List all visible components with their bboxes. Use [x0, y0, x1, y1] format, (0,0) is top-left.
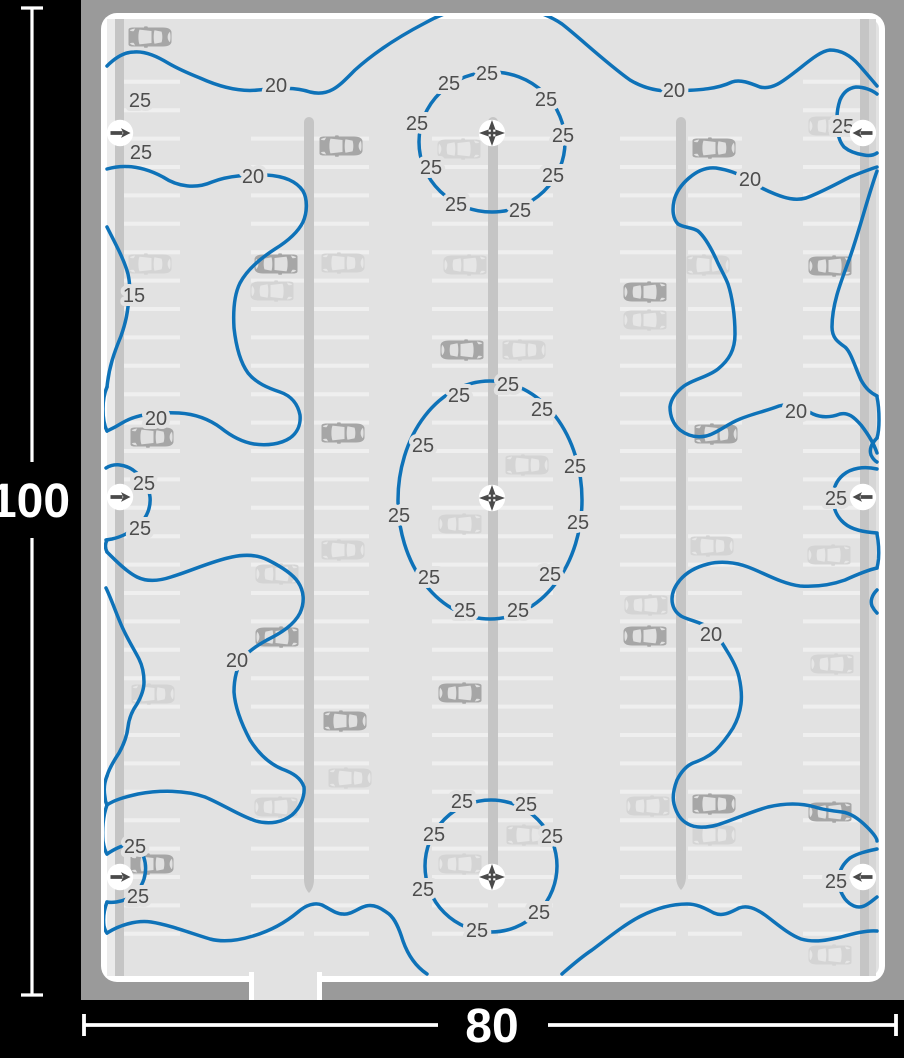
svg-text:25: 25	[541, 826, 563, 848]
svg-text:25: 25	[535, 89, 557, 111]
svg-text:20: 20	[265, 75, 287, 97]
svg-text:25: 25	[542, 165, 564, 187]
svg-text:25: 25	[454, 600, 476, 622]
svg-text:25: 25	[528, 902, 550, 924]
svg-text:25: 25	[388, 505, 410, 527]
svg-text:25: 25	[564, 456, 586, 478]
svg-text:20: 20	[242, 166, 264, 188]
svg-text:20: 20	[700, 624, 722, 646]
svg-text:25: 25	[406, 113, 428, 135]
svg-text:25: 25	[451, 791, 473, 813]
svg-text:25: 25	[412, 435, 434, 457]
svg-text:25: 25	[567, 512, 589, 534]
svg-text:25: 25	[129, 518, 151, 540]
svg-text:25: 25	[124, 836, 146, 858]
svg-text:25: 25	[825, 871, 847, 893]
svg-text:20: 20	[226, 650, 248, 672]
svg-text:80: 80	[465, 1000, 518, 1053]
svg-text:15: 15	[123, 285, 145, 307]
svg-text:25: 25	[825, 488, 847, 510]
svg-text:25: 25	[531, 399, 553, 421]
svg-text:25: 25	[129, 90, 151, 112]
svg-text:25: 25	[552, 125, 574, 147]
svg-text:25: 25	[466, 920, 488, 942]
svg-text:20: 20	[785, 401, 807, 423]
svg-text:25: 25	[445, 194, 467, 216]
svg-text:25: 25	[448, 385, 470, 407]
svg-text:20: 20	[739, 169, 761, 191]
svg-text:25: 25	[515, 794, 537, 816]
svg-text:100: 100	[0, 475, 70, 528]
svg-text:25: 25	[423, 824, 445, 846]
svg-text:20: 20	[663, 80, 685, 102]
svg-text:25: 25	[507, 600, 529, 622]
svg-text:25: 25	[497, 374, 519, 396]
svg-text:25: 25	[509, 200, 531, 222]
svg-text:25: 25	[127, 886, 149, 908]
svg-text:25: 25	[476, 63, 498, 85]
svg-text:25: 25	[418, 567, 440, 589]
svg-text:25: 25	[133, 473, 155, 495]
svg-text:25: 25	[539, 564, 561, 586]
svg-text:25: 25	[412, 879, 434, 901]
svg-text:25: 25	[130, 142, 152, 164]
svg-text:25: 25	[438, 73, 460, 95]
svg-text:25: 25	[420, 157, 442, 179]
svg-text:20: 20	[145, 408, 167, 430]
